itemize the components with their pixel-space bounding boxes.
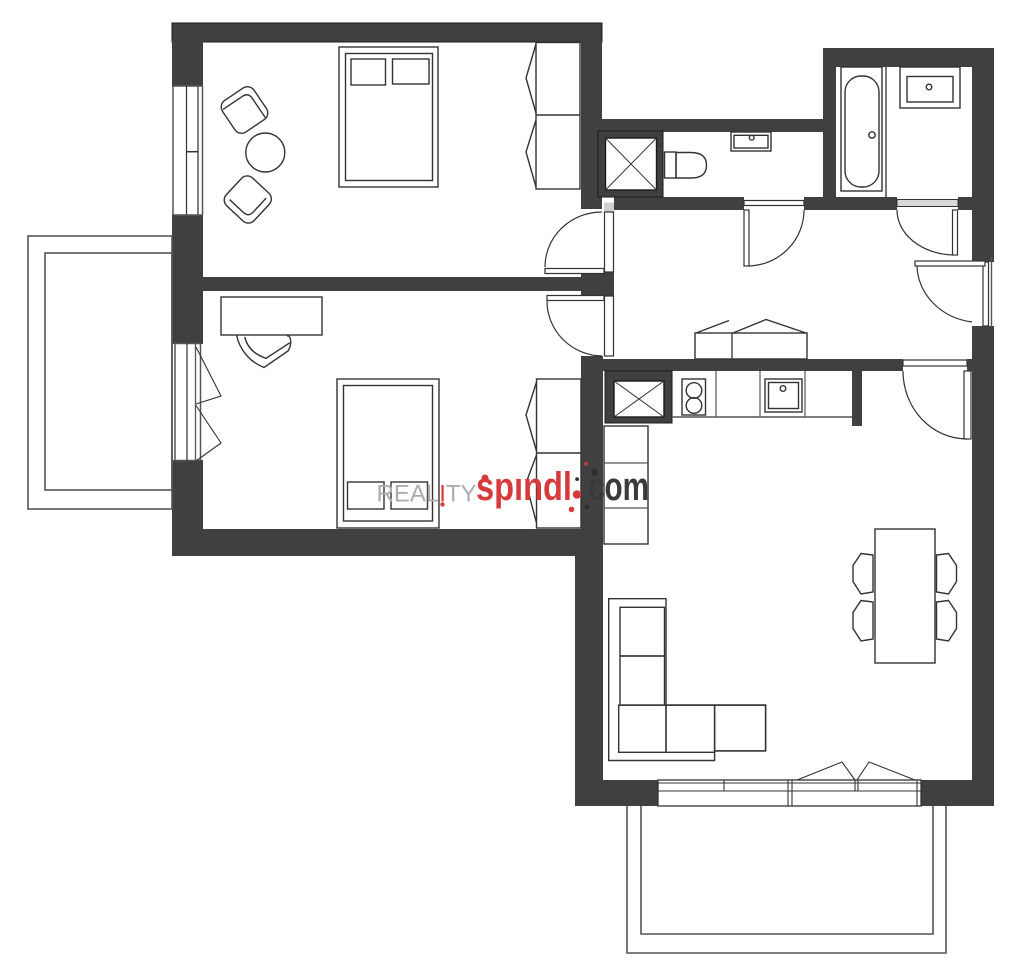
svg-text:REALITY: REALITY bbox=[377, 481, 477, 508]
svg-text:spındl: spındl bbox=[476, 465, 572, 509]
